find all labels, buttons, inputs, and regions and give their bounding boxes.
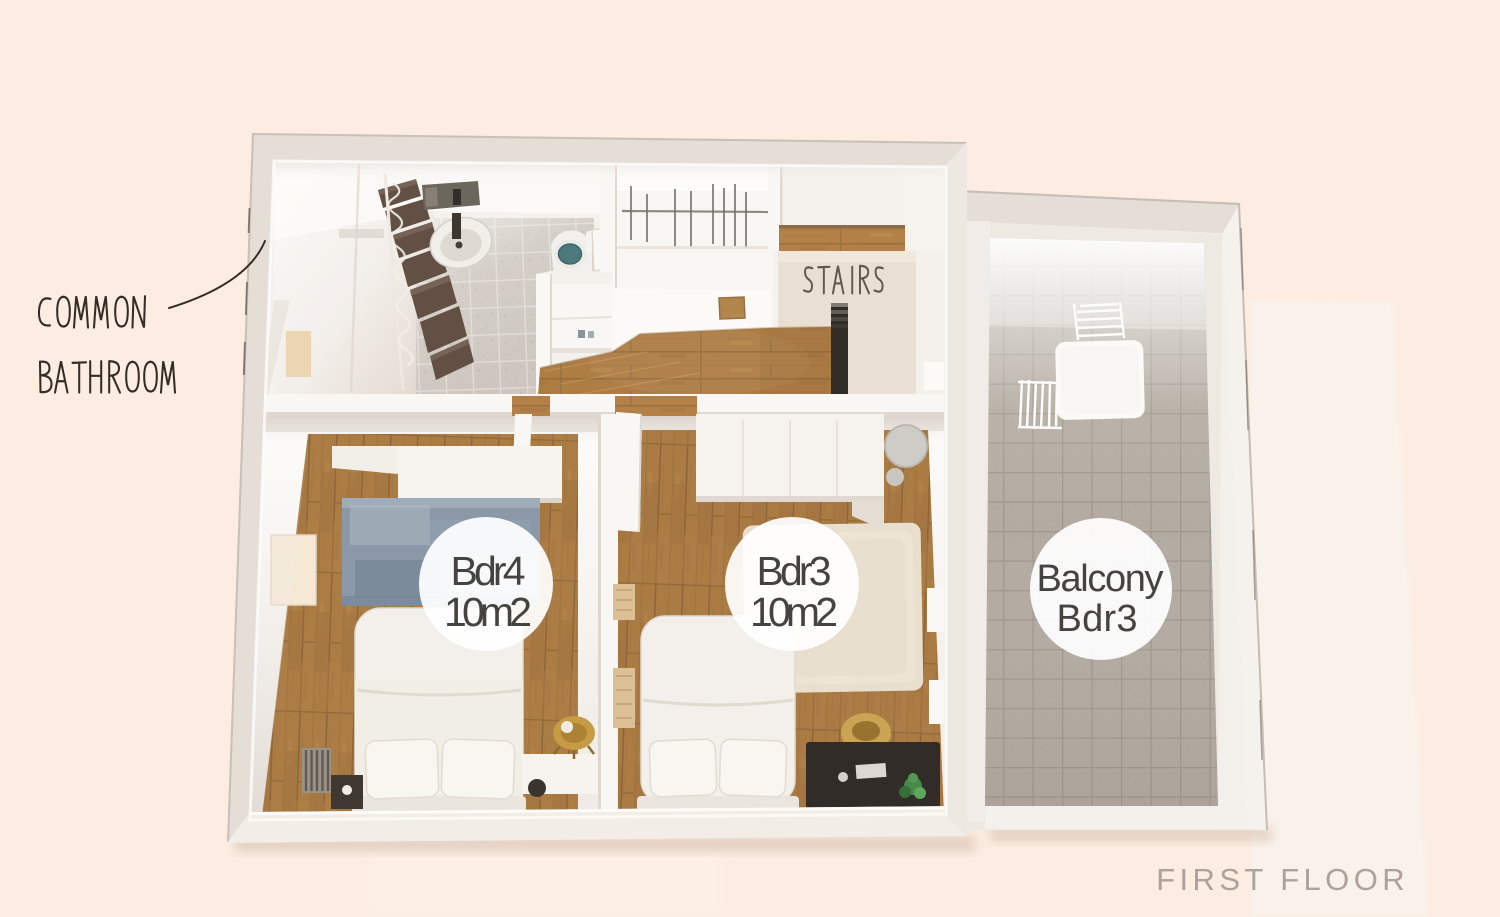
svg-text:10m2: 10m2 [444, 589, 532, 635]
svg-text:Balcony: Balcony [1037, 558, 1164, 600]
svg-text:Bdr4: Bdr4 [451, 548, 526, 594]
svg-text:10m2: 10m2 [750, 589, 838, 635]
svg-text:FIRST FLOOR: FIRST FLOOR [1156, 862, 1409, 897]
svg-text:Bdr3: Bdr3 [757, 548, 832, 594]
svg-text:Bdr3: Bdr3 [1057, 598, 1138, 640]
